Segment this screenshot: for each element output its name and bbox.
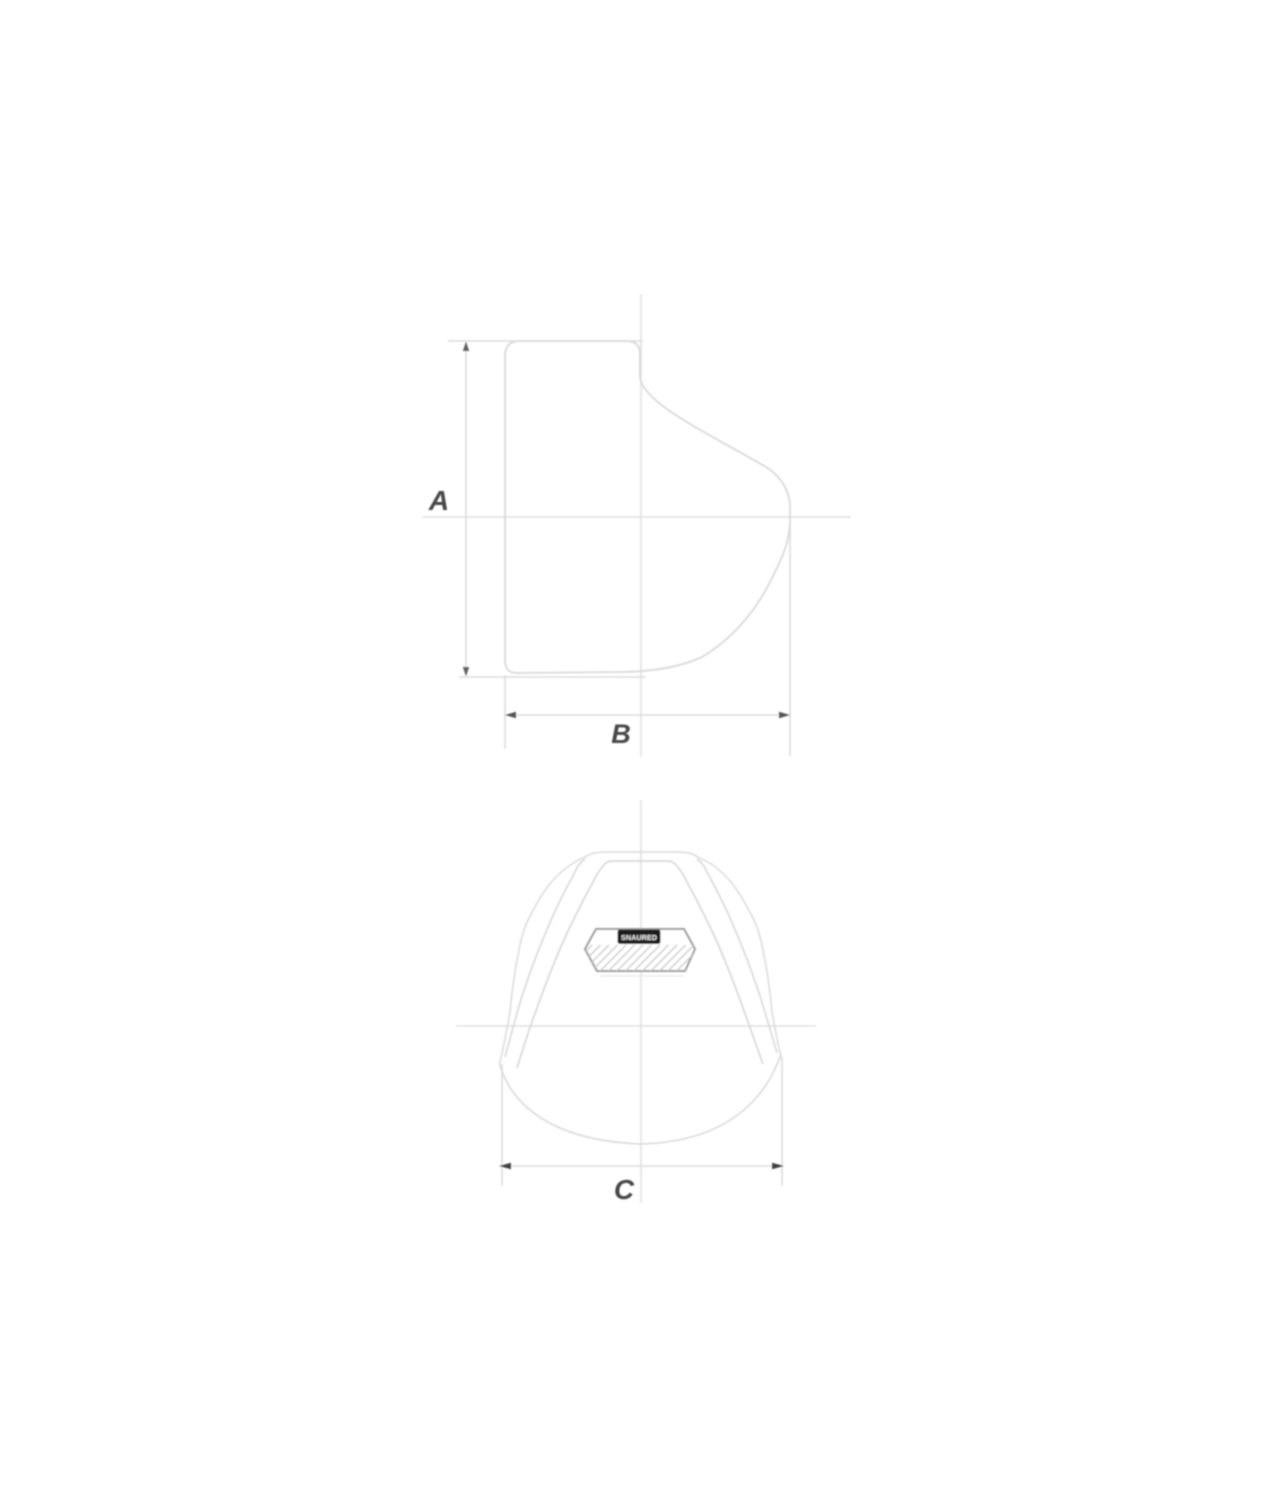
svg-text:SNAURED: SNAURED <box>621 935 657 942</box>
svg-text:B: B <box>611 719 631 749</box>
svg-text:A: A <box>428 485 449 516</box>
svg-text:C: C <box>614 1174 635 1205</box>
